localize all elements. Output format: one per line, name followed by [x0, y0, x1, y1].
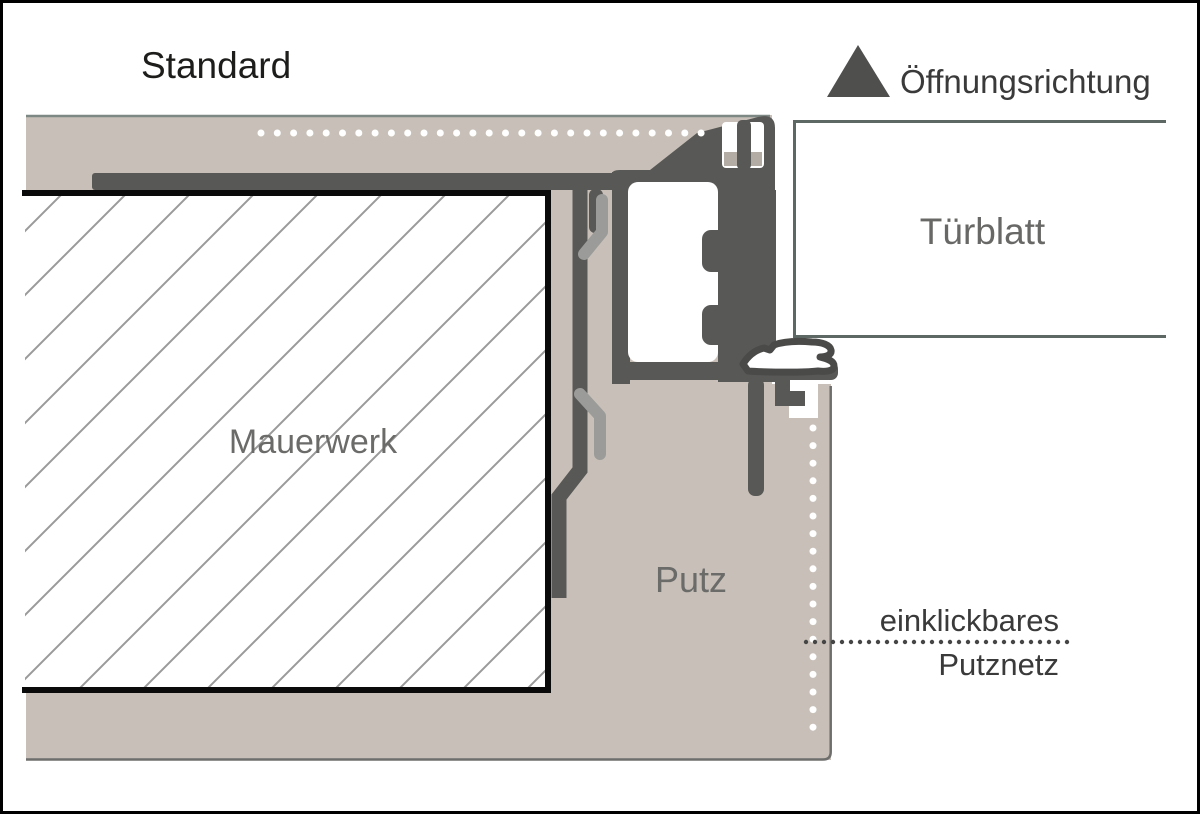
dot	[1038, 640, 1042, 644]
dot	[810, 583, 817, 590]
dot	[885, 640, 889, 644]
dot	[912, 640, 916, 644]
dot	[1065, 640, 1069, 644]
dot	[698, 130, 705, 137]
dot	[894, 640, 898, 644]
dot	[810, 548, 817, 555]
dot	[810, 653, 817, 660]
dot	[600, 130, 607, 137]
dot	[535, 130, 542, 137]
dot	[453, 130, 460, 137]
section-drawing	[3, 3, 1197, 811]
dot	[258, 130, 265, 137]
dot	[486, 130, 493, 137]
dot	[858, 640, 862, 644]
dot	[831, 640, 835, 644]
triangle-up-icon	[827, 45, 890, 97]
dot	[867, 640, 871, 644]
frame-plaster-fin	[748, 378, 764, 496]
dot	[404, 130, 411, 137]
dot	[290, 130, 297, 137]
dot	[1011, 640, 1015, 644]
dot	[804, 640, 808, 644]
dot	[518, 130, 525, 137]
door-leaf-label: Türblatt	[796, 213, 1169, 252]
dot	[274, 130, 281, 137]
plaster-label: Putz	[601, 561, 781, 599]
dot	[388, 130, 395, 137]
dot	[810, 724, 817, 731]
dot	[372, 130, 379, 137]
dot	[810, 495, 817, 502]
dot	[948, 640, 952, 644]
dot	[966, 640, 970, 644]
dot	[810, 477, 817, 484]
dot	[813, 640, 817, 644]
dot	[810, 442, 817, 449]
dot	[567, 130, 574, 137]
dot	[921, 640, 925, 644]
dot	[306, 130, 313, 137]
dot	[930, 640, 934, 644]
dot	[1047, 640, 1051, 644]
dot	[849, 640, 853, 644]
dot	[957, 640, 961, 644]
dot	[632, 130, 639, 137]
dot	[810, 689, 817, 696]
dot	[502, 130, 509, 137]
dot	[939, 640, 943, 644]
plaster-bottom-band	[26, 692, 831, 760]
dot	[681, 130, 688, 137]
dot	[665, 130, 672, 137]
dot	[437, 130, 444, 137]
diagram-canvas: Standard Öffnungsrichtung Türblatt Mauer…	[0, 0, 1200, 814]
leader-dotted-line	[804, 640, 1069, 644]
dot	[339, 130, 346, 137]
masonry-label: Mauerwerk	[203, 425, 423, 461]
frame-chamber-rib-upper	[702, 230, 730, 272]
dot	[822, 640, 826, 644]
frame-groove-tab	[737, 120, 751, 170]
dot	[810, 618, 817, 625]
dot	[810, 706, 817, 713]
dot	[975, 640, 979, 644]
dot	[1029, 640, 1033, 644]
frame-left-wall	[612, 172, 630, 384]
frame-top-flange	[92, 173, 616, 190]
dot	[810, 530, 817, 537]
mesh-label-line2: Putznetz	[859, 649, 1059, 682]
dot	[903, 640, 907, 644]
page-title: Standard	[141, 47, 291, 86]
frame-foot-clip-horizontal	[775, 391, 805, 406]
dot	[1020, 640, 1024, 644]
dot	[876, 640, 880, 644]
dot	[616, 130, 623, 137]
dot	[984, 640, 988, 644]
dot	[993, 640, 997, 644]
frame-chamber-rib-lower	[702, 305, 730, 345]
dot	[810, 460, 817, 467]
dot	[323, 130, 330, 137]
dot	[810, 671, 817, 678]
dot	[840, 640, 844, 644]
dot	[810, 513, 817, 520]
dot	[584, 130, 591, 137]
dot	[810, 425, 817, 432]
mesh-label-line1: einklickbares	[859, 605, 1059, 638]
dot	[810, 601, 817, 608]
dot	[551, 130, 558, 137]
opening-direction-label: Öffnungsrichtung	[900, 65, 1151, 100]
dot	[421, 130, 428, 137]
dot	[355, 130, 362, 137]
dot	[469, 130, 476, 137]
dot	[1002, 640, 1006, 644]
dot	[1056, 640, 1060, 644]
dot	[649, 130, 656, 137]
dot	[810, 565, 817, 572]
